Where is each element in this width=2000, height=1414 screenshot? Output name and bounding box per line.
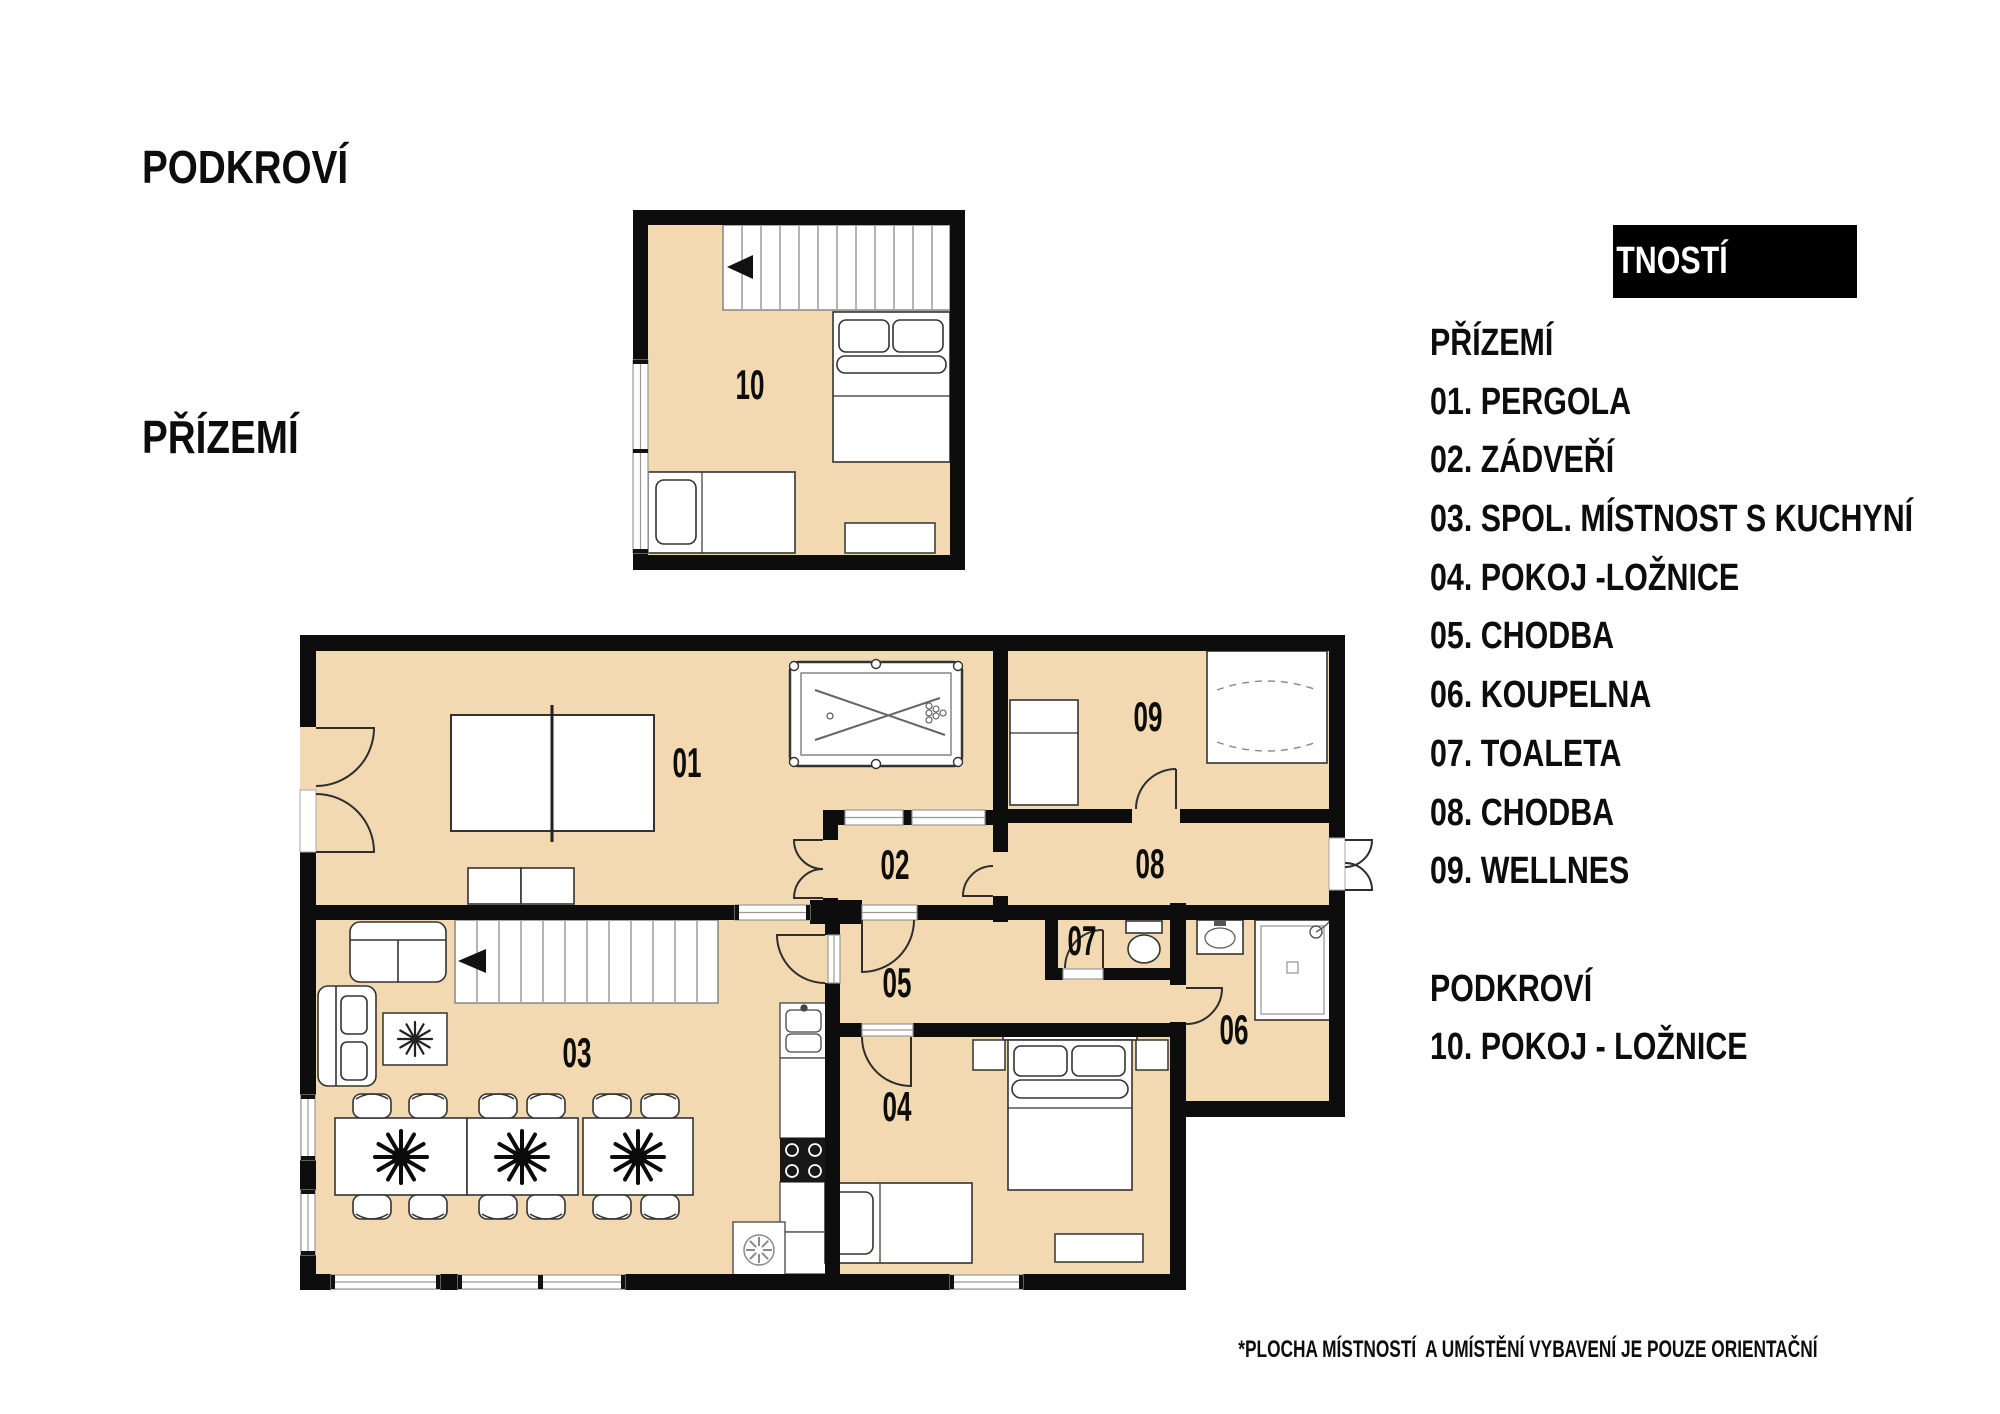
- massage-bed: [1010, 700, 1078, 805]
- attic-single-bed: [648, 472, 795, 553]
- window: [912, 810, 985, 825]
- room-label-03: 03: [563, 1030, 592, 1077]
- room-label-04: 04: [883, 1084, 912, 1131]
- room-label-08: 08: [1136, 841, 1165, 888]
- dresser: [1055, 1234, 1143, 1262]
- double-bed: [1003, 1030, 1137, 1190]
- floorplan-page: PODKROVÍ PŘÍZEMÍ TNOSTÍ PŘÍZEMÍ 01. PERG…: [0, 0, 2000, 1414]
- coffee-table: [383, 1013, 447, 1065]
- window: [331, 1275, 440, 1289]
- attic-window: [633, 360, 648, 553]
- glazed-door-threshold: [828, 935, 840, 983]
- room-label-06: 06: [1220, 1007, 1249, 1054]
- toilet: [1126, 921, 1162, 963]
- bench: [468, 868, 574, 904]
- attic-staircase: [723, 225, 950, 310]
- window: [301, 1190, 315, 1255]
- door-threshold: [1063, 969, 1103, 979]
- room-label-10: 10: [736, 362, 765, 409]
- kitchen-sink: [786, 1010, 821, 1032]
- pingpong-table: [451, 705, 654, 842]
- room-label-09: 09: [1134, 694, 1163, 741]
- floor-plans-canvas: 10: [0, 0, 2000, 1414]
- attic-dresser: [845, 523, 935, 553]
- sofa: [350, 922, 446, 982]
- attic-plan: 10: [633, 210, 965, 570]
- room-label-07: 07: [1068, 918, 1097, 965]
- window: [735, 905, 810, 920]
- window: [950, 1275, 1023, 1289]
- single-bed: [825, 1183, 972, 1263]
- door-jamb: [300, 790, 316, 852]
- window: [301, 1095, 315, 1160]
- door-jamb: [1329, 838, 1345, 890]
- nightstand: [973, 1040, 1005, 1070]
- hot-tub: [1207, 651, 1327, 763]
- window: [845, 810, 903, 825]
- window: [458, 1275, 625, 1289]
- door-threshold: [862, 1024, 913, 1036]
- bathroom-sink: [1197, 920, 1243, 954]
- shower: [1255, 920, 1330, 1020]
- room-label-05: 05: [883, 960, 912, 1007]
- glazed-door-threshold: [862, 905, 917, 920]
- nightstand: [1136, 1040, 1168, 1070]
- sofa: [318, 986, 376, 1086]
- fan-unit: [733, 1222, 785, 1278]
- ground-staircase: [455, 920, 718, 1003]
- billiard-table: [790, 660, 963, 769]
- room-label-01: 01: [673, 740, 702, 787]
- stove: [780, 1138, 827, 1182]
- room-label-02: 02: [881, 842, 910, 889]
- attic-double-bed: [833, 312, 950, 462]
- ground-floor-plan: 01 02 03 04 05 06 07 08 09: [300, 635, 1372, 1290]
